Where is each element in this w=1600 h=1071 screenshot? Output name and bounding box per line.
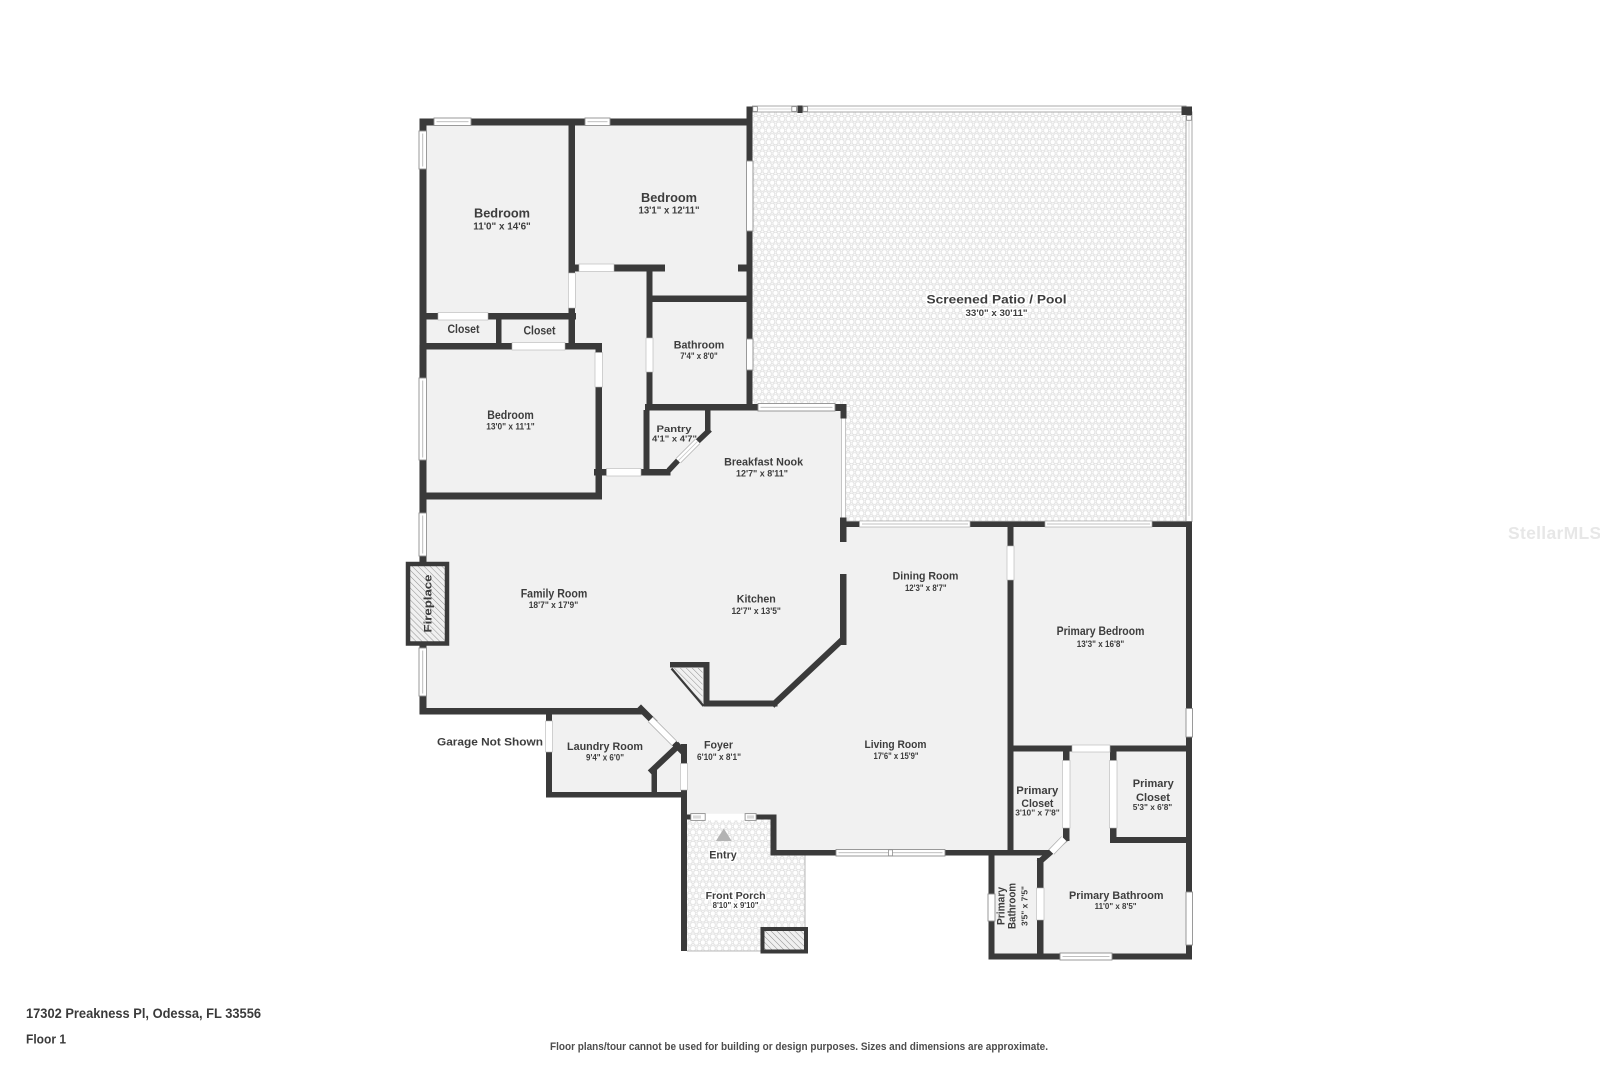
svg-text:33'0" x 30'11": 33'0" x 30'11" <box>966 308 1028 319</box>
svg-text:Living Room: Living Room <box>865 739 927 751</box>
svg-text:12'3" x 8'7": 12'3" x 8'7" <box>905 583 947 593</box>
svg-text:Fireplace: Fireplace <box>423 575 435 633</box>
svg-text:18'7" x 17'9": 18'7" x 17'9" <box>529 600 579 610</box>
svg-text:Dining Room: Dining Room <box>893 571 959 583</box>
svg-text:11'0" x 14'6": 11'0" x 14'6" <box>473 222 531 233</box>
svg-text:3'5" x 7'5": 3'5" x 7'5" <box>1021 886 1030 926</box>
svg-text:4'1" x 4'7": 4'1" x 4'7" <box>652 435 697 444</box>
svg-text:Garage Not Shown: Garage Not Shown <box>437 737 543 749</box>
svg-text:Screened Patio / Pool: Screened Patio / Pool <box>927 293 1067 307</box>
svg-text:Foyer: Foyer <box>704 740 734 752</box>
svg-text:6'10" x 8'1": 6'10" x 8'1" <box>697 752 741 762</box>
svg-text:Family Room: Family Room <box>521 587 588 601</box>
svg-text:Laundry Room: Laundry Room <box>567 741 643 753</box>
svg-text:13'3" x 16'8": 13'3" x 16'8" <box>1077 639 1125 650</box>
svg-text:9'4" x 6'0": 9'4" x 6'0" <box>586 753 624 763</box>
svg-text:Bathroom: Bathroom <box>674 340 725 352</box>
svg-text:Primary: Primary <box>1016 785 1059 797</box>
svg-text:13'1" x 12'11": 13'1" x 12'11" <box>639 206 700 217</box>
svg-text:Primary Bedroom: Primary Bedroom <box>1057 624 1145 638</box>
svg-text:Bathroom: Bathroom <box>1007 883 1019 929</box>
svg-text:17302 Preakness Pl, Odessa, FL: 17302 Preakness Pl, Odessa, FL 33556 <box>26 1006 261 1022</box>
svg-text:Floor plans/tour cannot be use: Floor plans/tour cannot be used for buil… <box>550 1041 1048 1053</box>
svg-text:Bedroom: Bedroom <box>487 410 534 422</box>
svg-text:12'7" x 8'11": 12'7" x 8'11" <box>736 469 788 479</box>
svg-text:12'7" x 13'5": 12'7" x 13'5" <box>731 606 781 616</box>
svg-text:8'10" x 9'10": 8'10" x 9'10" <box>713 901 759 910</box>
svg-text:Closet: Closet <box>524 326 556 338</box>
svg-text:Floor 1: Floor 1 <box>26 1032 66 1047</box>
svg-text:13'0" x 11'1": 13'0" x 11'1" <box>486 422 535 432</box>
svg-text:Closet: Closet <box>448 324 480 336</box>
svg-text:Primary: Primary <box>1133 778 1175 790</box>
svg-text:17'6" x 15'9": 17'6" x 15'9" <box>874 751 919 761</box>
svg-text:Breakfast Nook: Breakfast Nook <box>724 456 804 468</box>
svg-text:StellarMLS: StellarMLS <box>1508 523 1600 543</box>
svg-text:11'0" x 8'5": 11'0" x 8'5" <box>1095 901 1137 911</box>
svg-text:Kitchen: Kitchen <box>737 594 776 606</box>
svg-text:7'4" x 8'0": 7'4" x 8'0" <box>680 351 718 361</box>
svg-text:3'10" x 7'8": 3'10" x 7'8" <box>1015 808 1060 818</box>
svg-text:Pantry: Pantry <box>657 424 693 435</box>
svg-text:Entry: Entry <box>709 850 737 862</box>
svg-text:5'3" x 6'8": 5'3" x 6'8" <box>1133 802 1173 812</box>
svg-text:Bedroom: Bedroom <box>474 206 530 221</box>
svg-text:Bedroom: Bedroom <box>641 190 697 205</box>
